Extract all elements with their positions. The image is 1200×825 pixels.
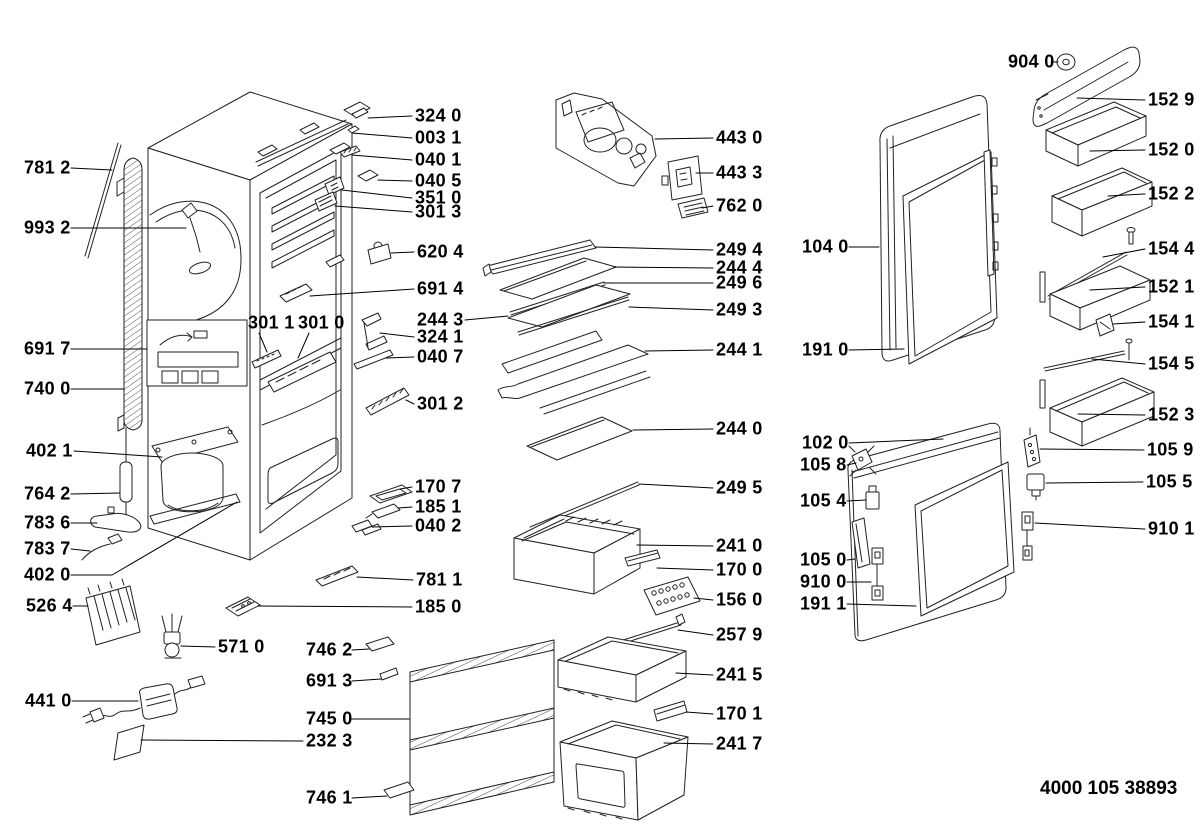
leader-line-232-3 [141,740,303,741]
document-code: 4000 105 38893 [1040,778,1177,800]
leader-line-324-0 [368,116,412,118]
part-label-764-2: 764 2 [24,484,71,505]
leader-line-040-5 [378,180,412,181]
part-label-003-1: 003 1 [415,128,462,149]
leader-line-781-2 [71,168,112,170]
part-label-249-6: 249 6 [716,273,763,294]
leader-line-764-2 [71,493,120,494]
part-label-691-7: 691 7 [24,339,71,360]
part-label-781-2: 781 2 [24,158,71,179]
part-label-783-6: 783 6 [24,513,71,534]
part-label-241-5: 241 5 [716,665,763,686]
part-label-746-2: 746 2 [306,640,353,661]
part-label-526-4: 526 4 [26,596,73,617]
leader-line-249-5 [639,484,713,488]
part-label-191-0: 191 0 [802,340,849,361]
leader-line-154-5 [1092,359,1145,364]
part-label-249-5: 249 5 [716,478,763,499]
leader-line-154-4 [1103,249,1145,257]
leader-line-783-7 [71,549,90,551]
part-label-105-4: 105 4 [800,491,847,512]
leader-line-249-3 [629,307,713,310]
part-label-571-0: 571 0 [218,637,265,658]
part-label-620-4: 620 4 [417,242,464,263]
part-label-154-5: 154 5 [1148,354,1195,375]
leader-line-620-4 [391,252,414,253]
part-label-152-0: 152 0 [1148,140,1195,161]
part-label-301-0: 301 0 [298,313,345,334]
part-label-443-3: 443 3 [716,163,763,184]
part-label-185-1: 185 1 [415,497,462,518]
part-label-170-0: 170 0 [716,560,763,581]
part-label-301-2: 301 2 [417,394,464,415]
part-label-301-3: 301 3 [415,202,462,223]
part-label-244-0: 244 0 [716,419,763,440]
part-label-152-3: 152 3 [1148,405,1195,426]
leader-line-185-0 [258,606,412,607]
leader-line-003-1 [352,133,412,138]
leader-line-170-1 [686,712,713,714]
leader-line-571-0 [181,646,215,647]
part-label-105-8: 105 8 [800,455,847,476]
part-label-154-1: 154 1 [1148,312,1195,333]
exploded-view-artwork [0,0,1200,825]
leader-line-781-1 [357,577,413,580]
part-label-301-1: 301 1 [248,313,295,334]
part-label-102-0: 102 0 [802,433,849,454]
leader-line-244-0 [633,429,713,430]
part-label-746-1: 746 1 [306,788,353,809]
leader-line-244-4 [614,267,713,268]
part-label-040-1: 040 1 [415,150,462,171]
part-label-185-0: 185 0 [415,597,462,618]
part-label-244-1: 244 1 [716,340,763,361]
leader-line-241-0 [637,545,713,546]
part-label-105-5: 105 5 [1146,472,1193,493]
part-label-170-7: 170 7 [415,477,462,498]
drawers-and-trays [514,515,700,820]
leader-line-105-9 [1040,449,1144,450]
part-label-745-0: 745 0 [306,709,353,730]
leader-line-910-1 [1035,523,1145,529]
part-label-191-1: 191 1 [800,594,847,615]
part-label-910-0: 910 0 [800,572,847,593]
leader-line-746-2 [352,649,369,650]
part-label-104-0: 104 0 [802,237,849,258]
part-label-910-1: 910 1 [1148,519,1195,540]
part-label-105-9: 105 9 [1147,440,1194,461]
part-label-993-2: 993 2 [24,218,71,239]
leader-line-324-1 [380,333,414,337]
part-label-904-0: 904 0 [1008,52,1055,73]
part-label-691-4: 691 4 [417,279,464,300]
leader-line-691-3 [352,679,381,681]
part-label-152-9: 152 9 [1148,90,1195,111]
part-label-443-0: 443 0 [716,128,763,149]
leader-line-257-9 [678,630,713,635]
control-module [556,93,708,218]
part-label-402-1: 402 1 [26,441,73,462]
leader-line-170-0 [657,568,713,570]
part-label-257-9: 257 9 [716,625,763,646]
leader-line-443-0 [655,138,713,139]
part-label-781-1: 781 1 [416,570,463,591]
leader-line-040-1 [352,155,412,160]
leader-line-185-1 [398,507,412,508]
part-label-105-0: 105 0 [800,550,847,571]
part-label-691-3: 691 3 [306,671,353,692]
part-label-324-0: 324 0 [415,106,462,127]
leader-line-249-4 [595,247,713,250]
part-label-156-0: 156 0 [716,590,763,611]
part-label-441-0: 441 0 [25,691,72,712]
part-label-170-1: 170 1 [716,704,763,725]
part-label-783-7: 783 7 [24,539,71,560]
leader-line-040-7 [386,357,414,358]
part-label-324-1: 324 1 [417,327,464,348]
part-label-402-0: 402 0 [24,565,71,586]
part-label-740-0: 740 0 [24,379,71,400]
part-label-232-3: 232 3 [306,731,353,752]
part-label-241-0: 241 0 [716,536,763,557]
part-label-241-7: 241 7 [716,734,763,755]
part-label-249-3: 249 3 [716,300,763,321]
exploded-parts-diagram: 781 2993 2691 7740 0402 1764 2783 6783 7… [0,0,1200,825]
part-label-152-1: 152 1 [1148,277,1195,298]
part-label-040-7: 040 7 [417,347,464,368]
part-label-154-4: 154 4 [1148,239,1195,260]
leader-line-746-1 [352,796,387,798]
leader-line-244-1 [645,350,713,351]
leader-line-301-2 [406,400,414,404]
leader-line-154-1 [1113,322,1145,324]
part-label-762-0: 762 0 [716,196,763,217]
part-label-040-2: 040 2 [415,516,462,537]
wire-condenser-unit [366,637,554,815]
part-label-152-2: 152 2 [1148,184,1195,205]
leader-line-105-5 [1046,482,1143,483]
leader-line-244-3 [465,316,508,320]
